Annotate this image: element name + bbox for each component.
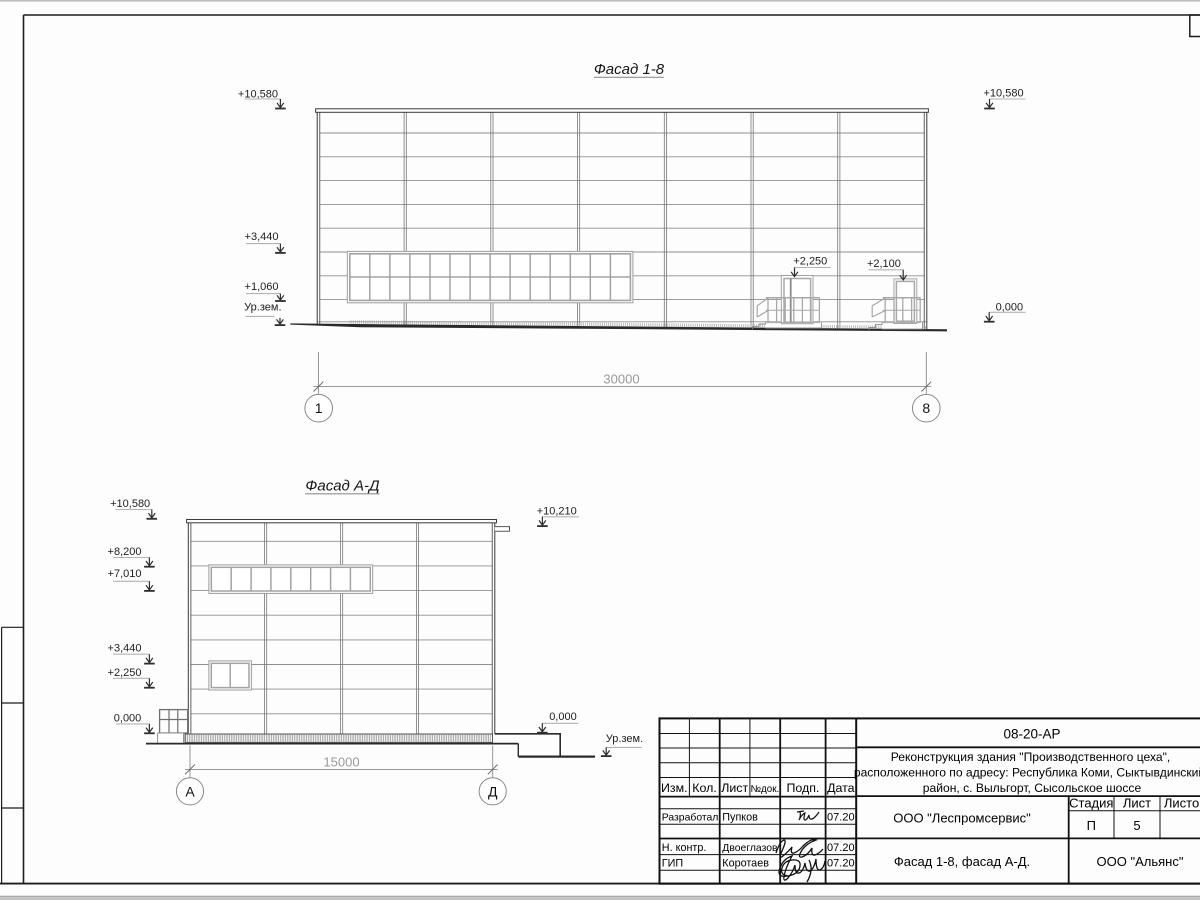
svg-text:Ур.зем.: Ур.зем. (244, 302, 281, 314)
svg-text:30000: 30000 (603, 372, 639, 387)
svg-text:+10,580: +10,580 (984, 87, 1024, 99)
svg-text:+2,250: +2,250 (793, 256, 827, 268)
svg-text:Реконструкция здания "Производ: Реконструкция здания "Производственного … (891, 750, 1171, 764)
svg-text:район, с. Выльгорт, Сысольское: район, с. Выльгорт, Сысольское шоссе (923, 781, 1142, 795)
svg-text:Изм.: Изм. (661, 781, 688, 795)
svg-text:Фасад А-Д: Фасад А-Д (305, 478, 380, 495)
svg-text:5: 5 (1133, 818, 1140, 833)
svg-text:07.20: 07.20 (827, 812, 855, 824)
svg-text:Двоеглазов: Двоеглазов (722, 843, 778, 854)
svg-text:Коротаев: Коротаев (722, 857, 769, 869)
svg-text:+10,580: +10,580 (110, 498, 150, 510)
svg-text:+3,440: +3,440 (245, 231, 279, 243)
svg-text:Пупков: Пупков (722, 812, 758, 824)
svg-text:П: П (1087, 818, 1096, 833)
svg-text:Лист: Лист (1123, 795, 1151, 810)
svg-text:07.20: 07.20 (827, 857, 855, 869)
svg-text:+2,250: +2,250 (108, 667, 142, 679)
svg-text:0,000: 0,000 (996, 301, 1024, 313)
svg-text:Подп.: Подп. (786, 781, 819, 795)
svg-text:ООО "Альянс": ООО "Альянс" (1097, 854, 1184, 869)
svg-text:0,000: 0,000 (549, 711, 577, 723)
svg-text:А: А (185, 783, 195, 799)
svg-text:расположенного по адресу: Респ: расположенного по адресу: Республика Ком… (854, 766, 1200, 780)
svg-text:08-20-АР: 08-20-АР (1003, 727, 1060, 742)
svg-text:+10,210: +10,210 (537, 505, 577, 517)
svg-text:Кол.: Кол. (692, 781, 717, 795)
svg-text:Ур.зем.: Ур.зем. (606, 733, 643, 745)
svg-text:0,000: 0,000 (114, 712, 142, 724)
svg-text:Фасад 1-8, фасад А-Д.: Фасад 1-8, фасад А-Д. (894, 854, 1030, 869)
svg-text:Дата: Дата (827, 781, 855, 795)
svg-text:Стадия: Стадия (1069, 795, 1113, 810)
svg-text:15000: 15000 (323, 755, 359, 770)
svg-text:Фасад 1-8: Фасад 1-8 (594, 61, 665, 78)
svg-text:№док.: №док. (751, 784, 780, 795)
svg-text:Листов: Листов (1164, 795, 1200, 810)
svg-text:07.20: 07.20 (827, 842, 855, 854)
svg-text:ООО "Леспромсервис": ООО "Леспромсервис" (893, 810, 1031, 825)
svg-text:+7,010: +7,010 (108, 568, 142, 580)
svg-text:1: 1 (315, 400, 323, 416)
svg-text:Д: Д (488, 783, 498, 799)
svg-text:+2,100: +2,100 (867, 258, 901, 270)
svg-text:Н. контр.: Н. контр. (662, 842, 707, 854)
svg-text:Разработал: Разработал (662, 812, 719, 824)
svg-text:+3,440: +3,440 (108, 643, 142, 655)
svg-text:+1,060: +1,060 (245, 281, 279, 293)
svg-text:Лист: Лист (721, 781, 748, 795)
svg-text:8: 8 (922, 400, 930, 416)
svg-text:+8,200: +8,200 (108, 546, 142, 558)
svg-text:ГИП: ГИП (662, 857, 683, 869)
